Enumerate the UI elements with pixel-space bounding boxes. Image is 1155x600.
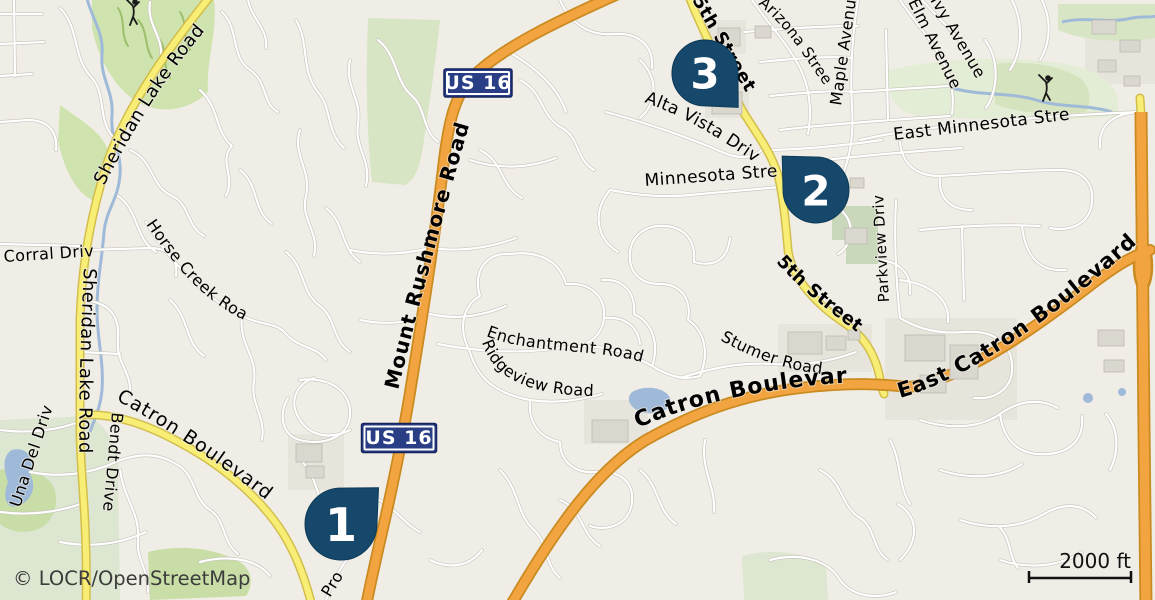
building	[905, 335, 945, 361]
building	[1124, 76, 1140, 86]
map-image: Sheridan Lake RoadSheridan Lake RoadCorr…	[0, 0, 1155, 600]
marker-number: 1	[325, 498, 357, 552]
map-marker-2: 2	[782, 156, 849, 223]
highway	[1141, 112, 1146, 600]
scale-label: 2000 ft	[1059, 549, 1131, 573]
pond	[1118, 388, 1126, 396]
route-shield-us16: US 16	[444, 69, 512, 97]
pond	[1083, 393, 1093, 403]
attribution-text: © LOCR/OpenStreetMap	[13, 567, 250, 590]
building	[592, 420, 628, 442]
map-canvas: Sheridan Lake RoadSheridan Lake RoadCorr…	[0, 0, 1155, 600]
building	[1104, 360, 1124, 372]
route-shield-us16: US 16	[362, 424, 437, 453]
map-marker-1: 1	[305, 488, 379, 560]
building	[788, 332, 822, 354]
building	[755, 26, 771, 38]
building	[1120, 40, 1140, 52]
building	[845, 228, 867, 244]
building	[306, 466, 324, 478]
marker-number: 2	[801, 167, 830, 216]
route-shield-label: US 16	[365, 427, 432, 449]
building	[1098, 330, 1124, 346]
building	[296, 444, 322, 462]
building	[1092, 20, 1116, 34]
secondary-road	[1140, 98, 1141, 114]
map-marker-3: 3	[672, 40, 738, 107]
building	[850, 178, 864, 188]
marker-number: 3	[690, 50, 719, 99]
route-shield-label: US 16	[444, 72, 511, 94]
building	[1098, 60, 1116, 72]
building	[826, 336, 846, 350]
